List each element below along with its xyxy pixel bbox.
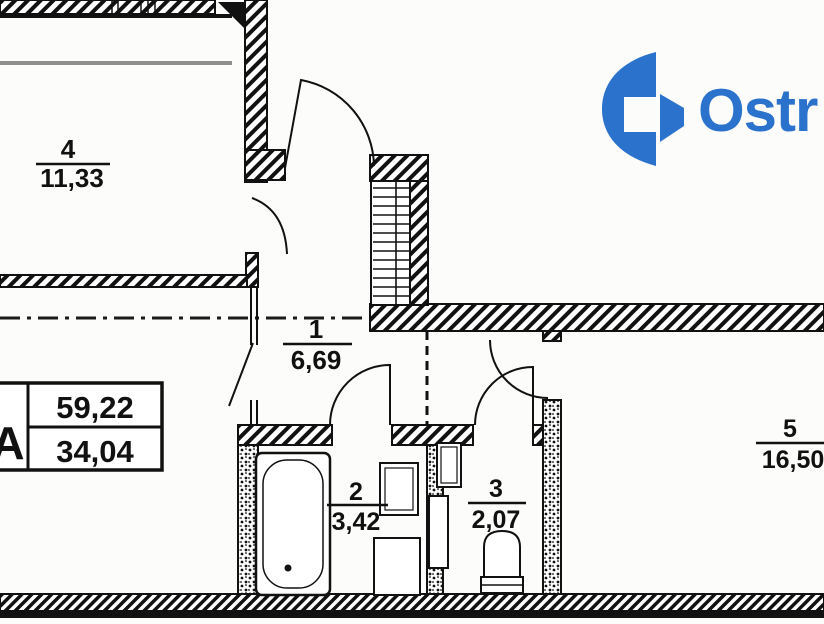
wall-bath-top-left bbox=[238, 425, 332, 445]
washing-machine bbox=[374, 538, 420, 595]
sink bbox=[380, 463, 418, 515]
room-area: 11,33 bbox=[40, 163, 104, 193]
room-area: 2,07 bbox=[472, 506, 521, 534]
wall-top-edge bbox=[0, 14, 232, 18]
wall-bottom-edge bbox=[0, 610, 824, 618]
living-area-value: 34,04 bbox=[56, 434, 134, 469]
floor-plan-page: 4 11,33 1 6,69 2 3,42 3 2,07 5 16,50 bbox=[0, 0, 824, 624]
floor-plan-svg: 4 11,33 1 6,69 2 3,42 3 2,07 5 16,50 bbox=[0, 0, 824, 624]
wall-room4-bottom bbox=[0, 275, 247, 287]
wall-bottom bbox=[0, 594, 824, 612]
wall-stub bbox=[245, 150, 285, 180]
vent-shaft-top bbox=[370, 155, 428, 181]
vent-shaft-right bbox=[410, 181, 428, 305]
room-number: 1 bbox=[309, 314, 323, 344]
bathtub-drain bbox=[285, 565, 292, 572]
vent-shaft bbox=[370, 155, 428, 305]
room-number: 2 bbox=[349, 478, 363, 506]
wall-room5-top bbox=[370, 304, 824, 331]
wall-room5-left bbox=[543, 400, 561, 595]
apartment-info-table: А 59,22 34,04 bbox=[0, 383, 162, 470]
total-area-value: 59,22 bbox=[56, 390, 134, 425]
wall-room5-left-top bbox=[543, 331, 561, 341]
wall-top bbox=[0, 0, 215, 14]
room-area: 16,50 bbox=[762, 446, 824, 474]
riser-duct bbox=[429, 496, 448, 568]
room-number: 5 bbox=[783, 415, 797, 443]
water-heater bbox=[437, 443, 461, 487]
bathtub bbox=[256, 453, 330, 595]
room-area: 3,42 bbox=[332, 508, 381, 536]
room-number: 3 bbox=[489, 475, 503, 503]
balcony-gray-line bbox=[0, 61, 232, 65]
room-number: 4 bbox=[61, 134, 76, 164]
apartment-series-letter: А bbox=[0, 417, 25, 469]
room-area: 6,69 bbox=[291, 345, 342, 375]
toilet bbox=[481, 531, 523, 593]
logo-text: Ostr bbox=[698, 77, 818, 144]
